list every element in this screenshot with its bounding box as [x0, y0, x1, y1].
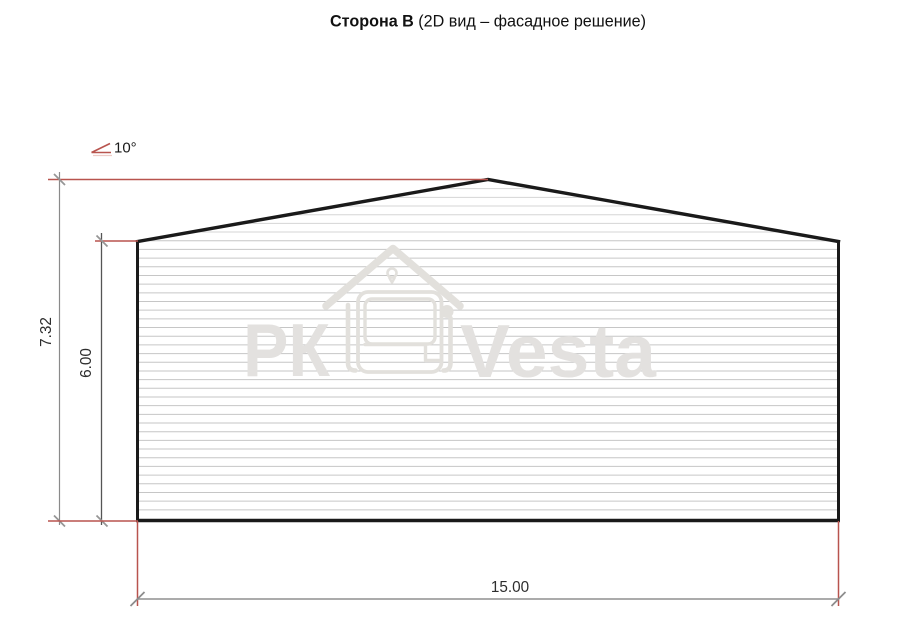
svg-text:15.00: 15.00 — [491, 579, 529, 596]
svg-text:РК: РК — [243, 308, 330, 392]
svg-text:6.00: 6.00 — [78, 348, 95, 378]
svg-text:Vesta: Vesta — [460, 309, 657, 393]
svg-text:10°: 10° — [114, 140, 137, 157]
svg-text:Сторона В (2D вид – фасадное р: Сторона В (2D вид – фасадное решение) — [330, 13, 646, 31]
svg-text:7.32: 7.32 — [38, 317, 55, 347]
